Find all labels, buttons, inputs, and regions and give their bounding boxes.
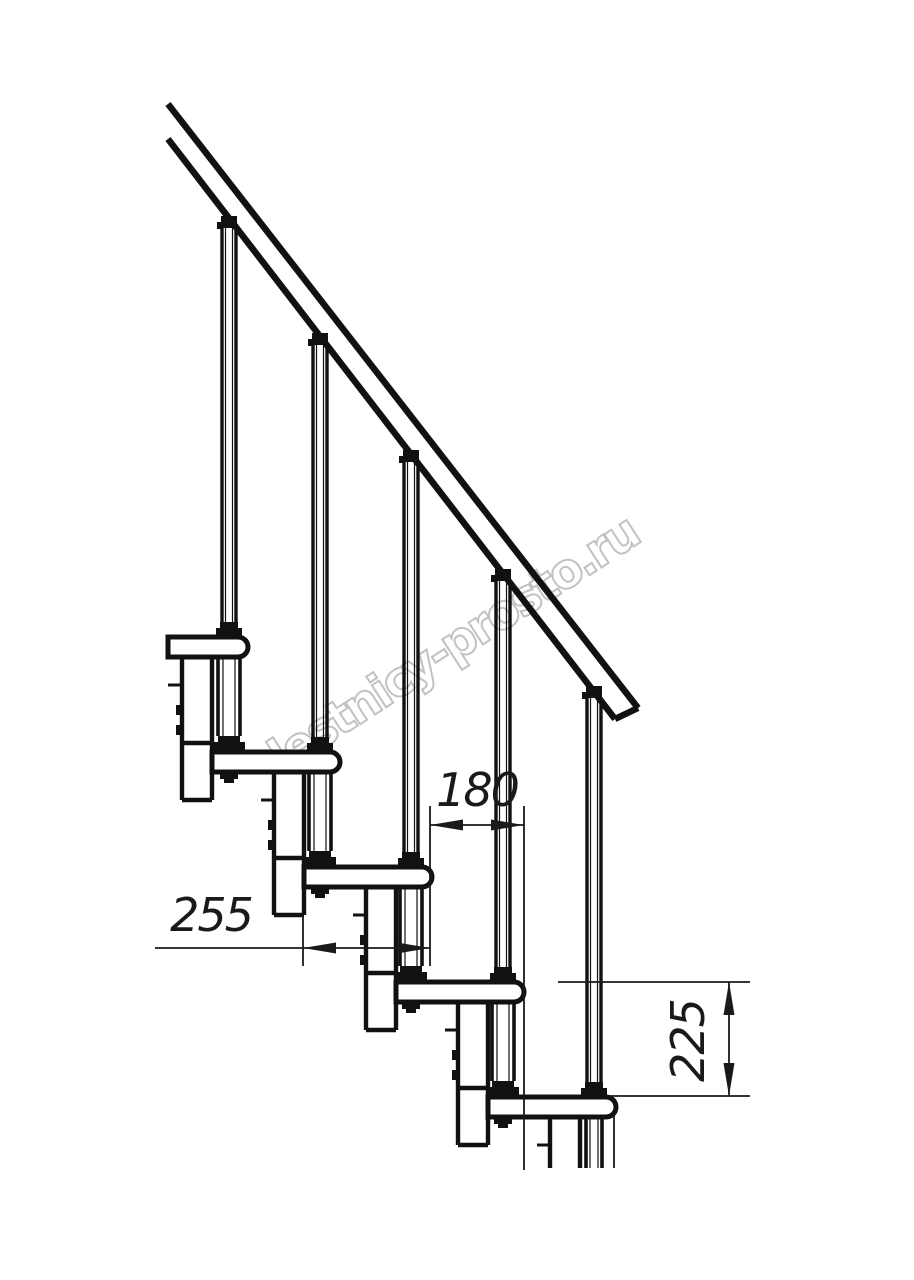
nut	[311, 886, 329, 898]
support-column	[213, 658, 245, 752]
stringer-module	[537, 1118, 580, 1168]
tread	[168, 637, 248, 657]
dimension-label-going: 180	[436, 763, 518, 817]
tread	[488, 1097, 616, 1117]
support-column	[586, 1118, 602, 1168]
stringer-module	[353, 888, 396, 1030]
dimensions: 180 255 225	[155, 763, 750, 1170]
support-column	[395, 888, 427, 982]
tread	[212, 752, 340, 772]
dimension-label-tread-depth: 255	[170, 888, 252, 942]
staircase-drawing: lestnicy-prosto.ru	[0, 0, 914, 1280]
stringer-module	[445, 1003, 488, 1145]
nut	[402, 1001, 420, 1013]
dimension-tread-depth: 255	[155, 888, 430, 966]
tread	[304, 867, 432, 887]
support-column	[487, 1003, 519, 1097]
tread	[396, 982, 524, 1002]
baluster	[307, 333, 333, 752]
support-column	[304, 773, 336, 867]
stringer-module	[168, 658, 212, 800]
dimension-label-rise: 225	[661, 1000, 715, 1082]
staircase-drawing-page: lestnicy-prosto.ru	[0, 0, 914, 1280]
baluster	[216, 216, 242, 637]
stringer-module	[261, 773, 304, 915]
nut	[220, 771, 238, 783]
baluster	[581, 686, 607, 1097]
nut	[494, 1116, 512, 1128]
